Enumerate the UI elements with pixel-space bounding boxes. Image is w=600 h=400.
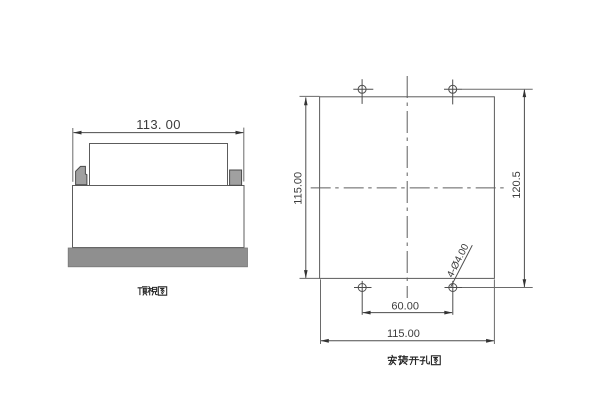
- svg-text:120.5: 120.5: [511, 171, 523, 199]
- svg-text:60.00: 60.00: [391, 301, 419, 313]
- svg-text:113. 00: 113. 00: [136, 117, 181, 132]
- svg-text:115.00: 115.00: [387, 328, 420, 340]
- svg-text:115.00: 115.00: [293, 172, 305, 205]
